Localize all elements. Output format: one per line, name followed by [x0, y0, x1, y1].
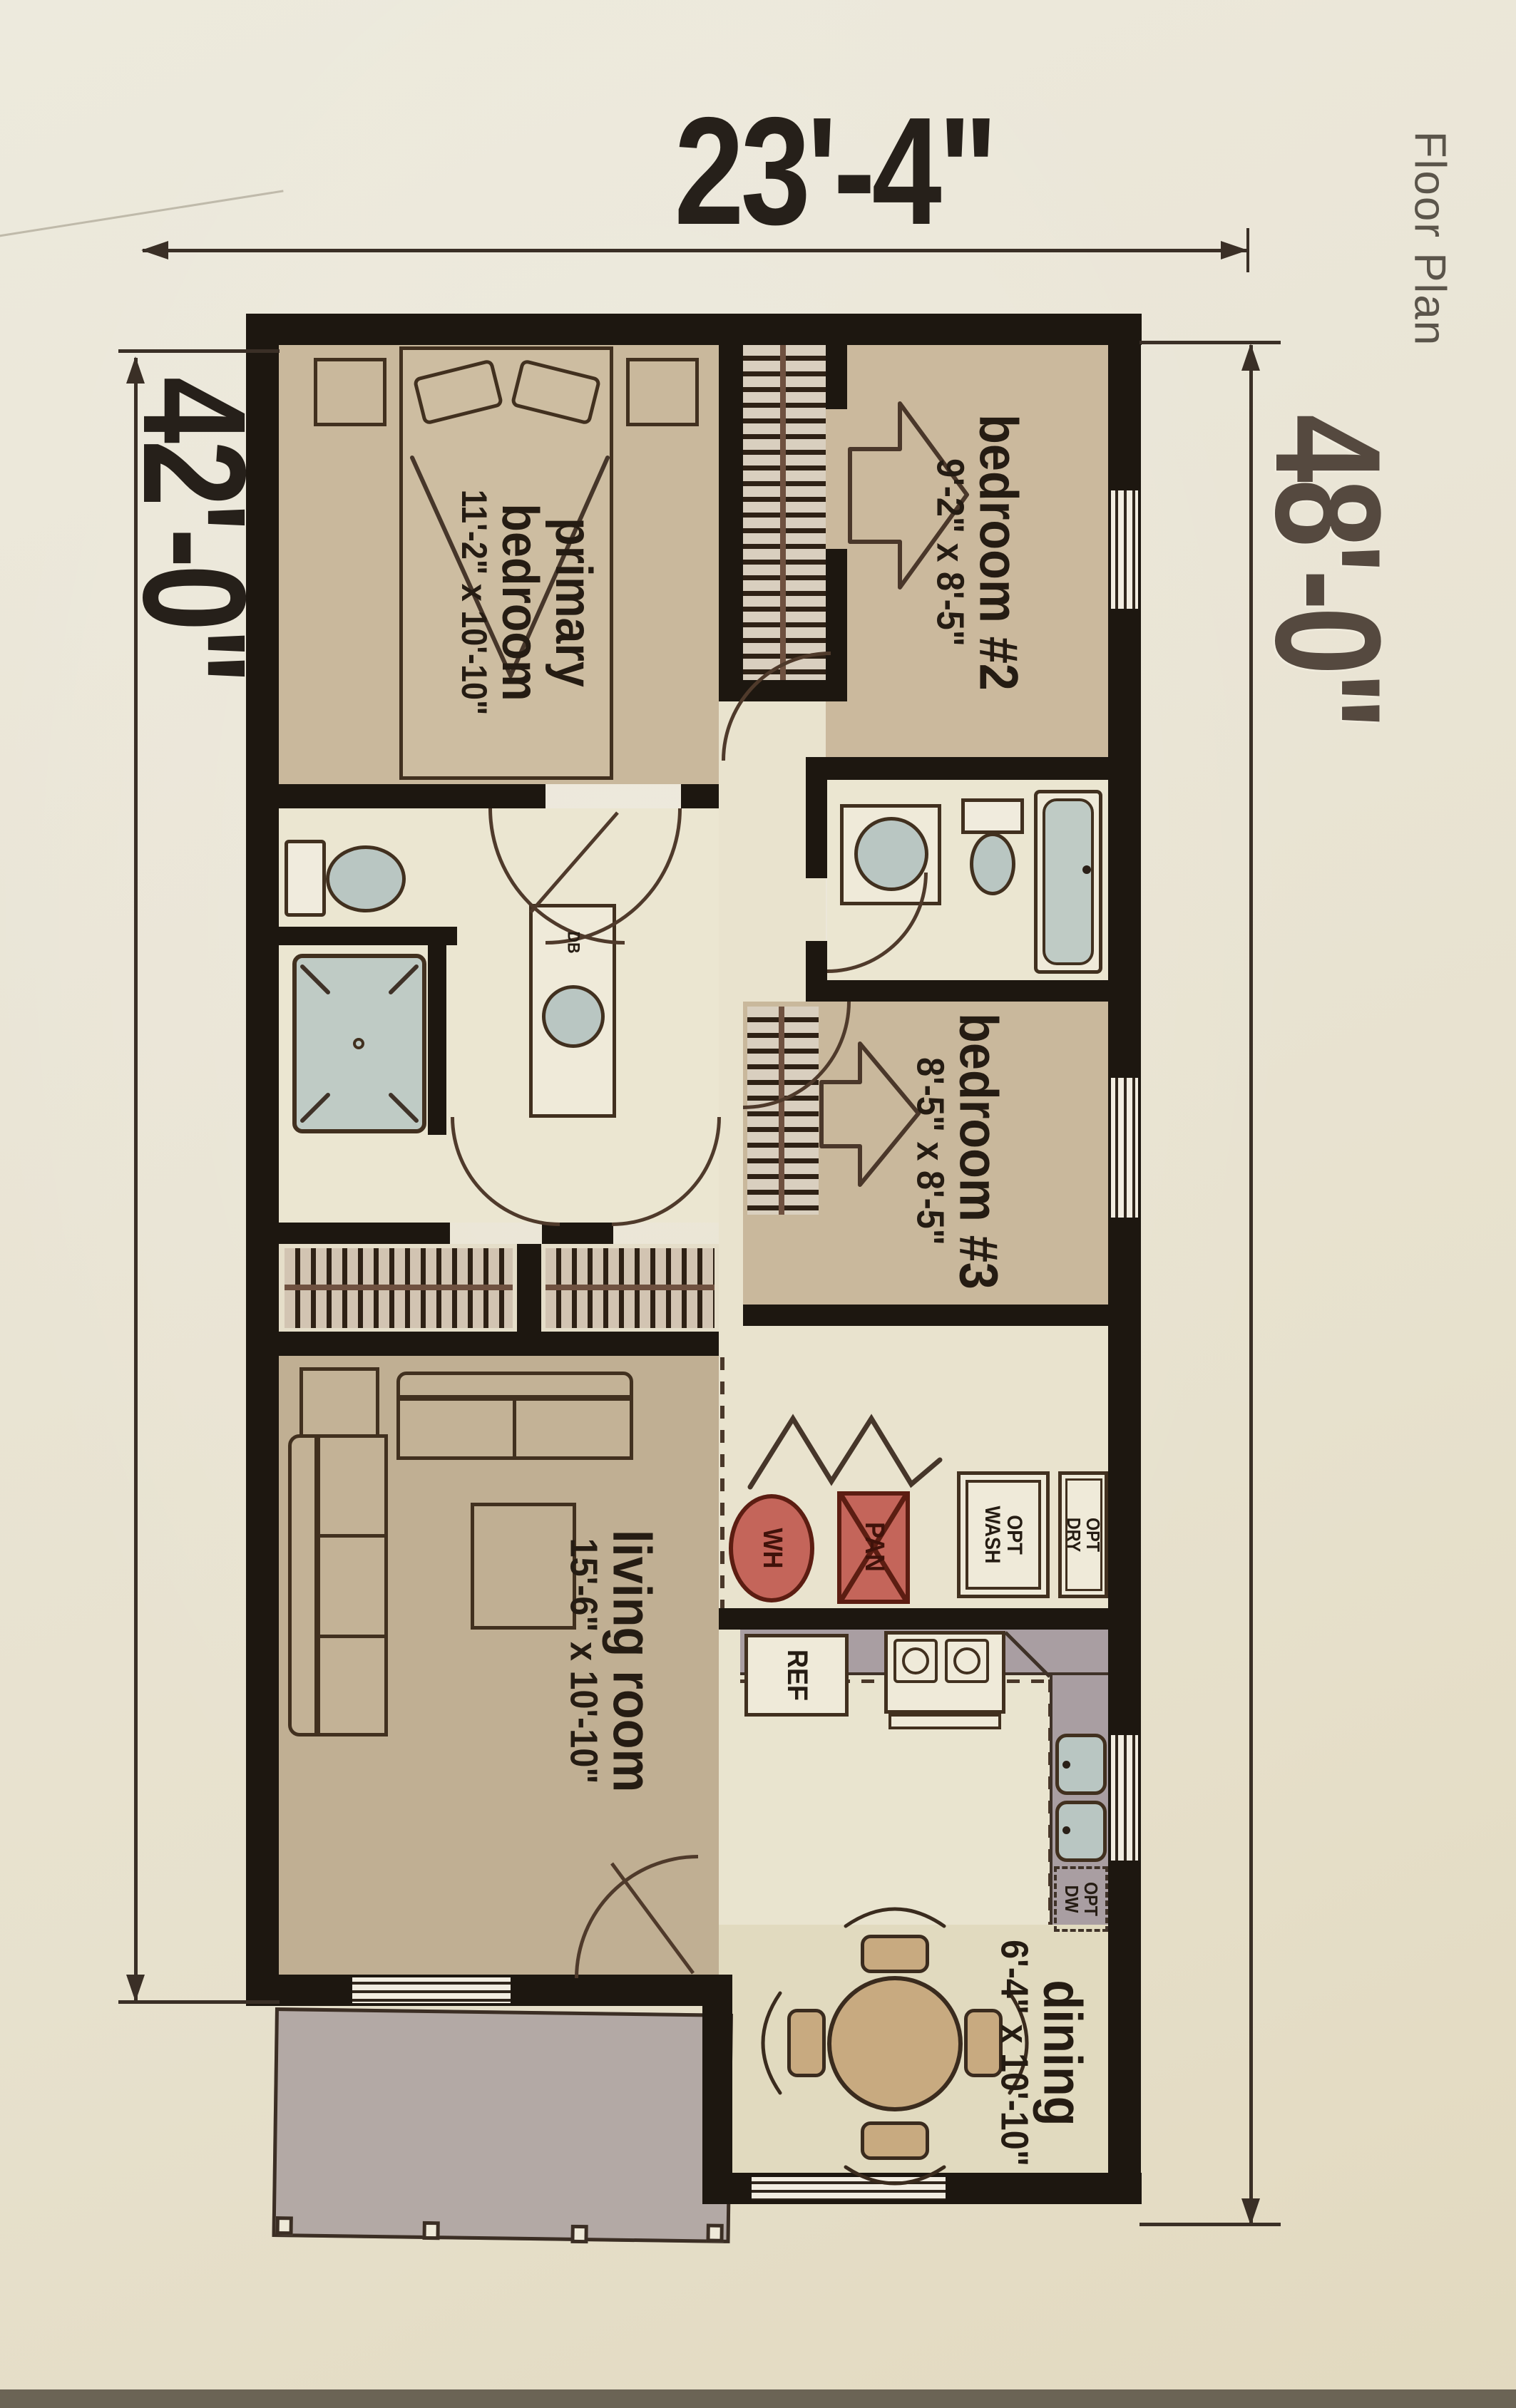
dimension-width-tick-right: [1246, 228, 1249, 272]
dimension-left-line: [134, 358, 138, 2002]
label-dishwasher: OPT DW: [1062, 1882, 1100, 1916]
dryer-line1: OPT: [1083, 1518, 1102, 1553]
label-dryer: OPT DRY: [1064, 1518, 1102, 1553]
dimension-width-text: 23'-4": [675, 83, 995, 259]
bedroom2-size: 9'-2" x 8'-5": [930, 414, 970, 691]
primary-name-1: primary: [546, 490, 600, 716]
dining-size: 6'-4" x 10'-10": [994, 1940, 1034, 2166]
page-title: Floor Plan: [1405, 131, 1455, 347]
dimension-right-arrow-up: [1241, 344, 1260, 371]
living-name: living room: [604, 1530, 660, 1793]
dryer-line2: DRY: [1064, 1518, 1083, 1553]
shower-corner-ticks: [302, 967, 416, 1121]
label-bedroom3: bedroom #3 8'-5" x 8'-5": [910, 1013, 1006, 1290]
label-washer: OPT WASH: [981, 1506, 1025, 1564]
living-size: 15'-6" x 10'-10": [563, 1530, 603, 1793]
chair-arc: [846, 1909, 944, 1926]
dimension-width-line: [143, 249, 1246, 252]
dimension-left-ext-bottom: [118, 2000, 280, 2004]
dimension-right-line: [1249, 345, 1253, 2226]
dimension-left-arrow-up: [126, 356, 145, 384]
dining-name: dining: [1035, 1940, 1091, 2166]
washer-line2: WASH: [981, 1506, 1003, 1564]
bedroom2-name: bedroom #2: [970, 414, 1027, 691]
label-dining: dining 6'-4" x 10'-10": [994, 1940, 1090, 2166]
bath1-door-leaf: [531, 813, 618, 912]
dimension-arrow-left: [141, 241, 168, 259]
dishwasher-line1: OPT: [1081, 1882, 1100, 1916]
label-living-room: living room 15'-6" x 10'-10": [563, 1530, 660, 1793]
plan-detail-lines: [0, 0, 1516, 2408]
closet3-bifold-arrow: [821, 1044, 918, 1185]
label-primary-bedroom: primary bedroom 11'-2" x 10'-10": [456, 490, 600, 716]
dimension-right-arrow-down: [1241, 2198, 1260, 2226]
counter-diagonal: [1005, 1632, 1050, 1677]
primary-size: 11'-2" x 10'-10": [456, 490, 493, 716]
label-bedroom2: bedroom #2 9'-2" x 8'-5": [930, 414, 1026, 691]
label-refrigerator: REF: [782, 1650, 811, 1701]
label-vanity-db: DB: [564, 931, 582, 953]
dimension-right-ext-bottom: [1139, 2223, 1281, 2226]
label-pantry: PAN: [859, 1522, 888, 1572]
bedroom3-size: 8'-5" x 8'-5": [910, 1013, 950, 1290]
bifold-door-zigzag: [750, 1419, 940, 1487]
chair-arc: [763, 1993, 780, 2093]
bedroom3-name: bedroom #3: [951, 1013, 1007, 1290]
floor-plan-photo: primary bedroom 11'-2" x 10'-10" bedroom…: [0, 0, 1516, 2408]
dishwasher-line2: DW: [1062, 1882, 1081, 1916]
washer-line1: OPT: [1003, 1506, 1025, 1564]
label-water-heater: WH: [757, 1528, 786, 1569]
entry-door-leaf: [612, 1863, 693, 1973]
dimension-right-text: 48'-0": [1241, 414, 1414, 726]
primary-name-2: bedroom: [493, 490, 546, 716]
dimension-left-ext-top: [118, 349, 280, 353]
dimension-right-ext-top: [1139, 341, 1281, 344]
dimension-arrow-right: [1221, 241, 1248, 259]
chair-arc: [846, 2167, 944, 2183]
dimension-left-arrow-down: [126, 1975, 145, 2002]
